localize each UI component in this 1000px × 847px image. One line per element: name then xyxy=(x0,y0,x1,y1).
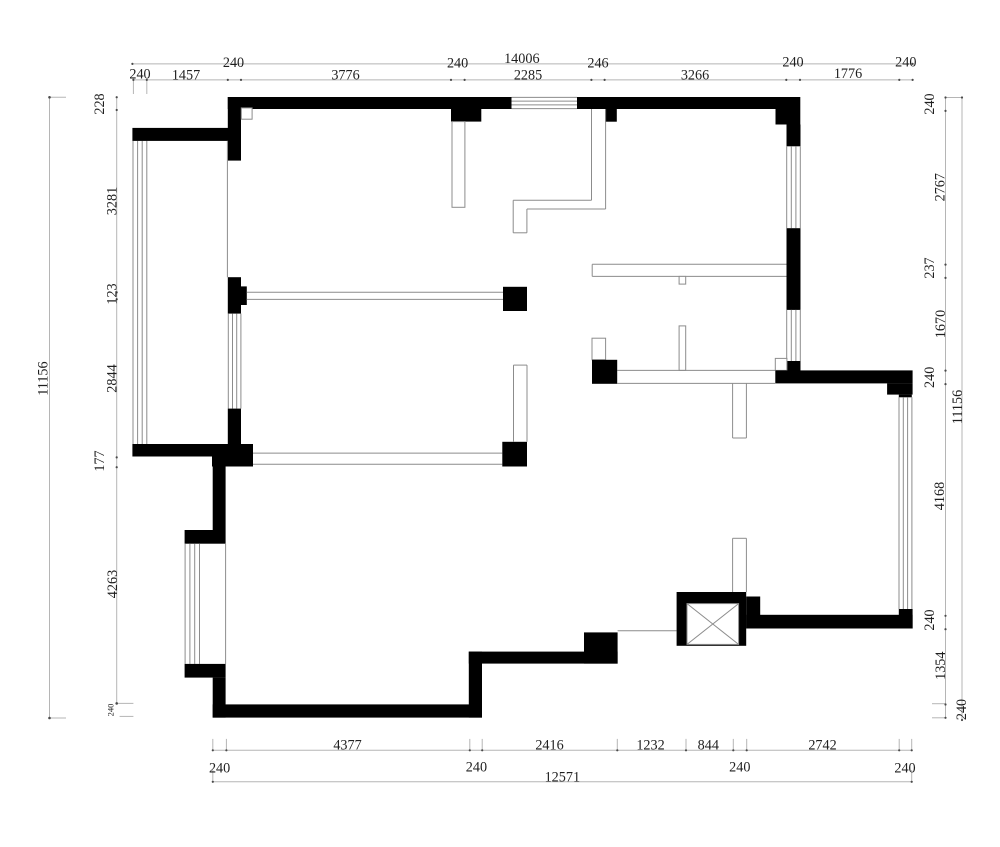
svg-text:240: 240 xyxy=(922,367,938,388)
svg-text:1670: 1670 xyxy=(933,310,949,338)
svg-text:3776: 3776 xyxy=(331,67,359,83)
svg-text:228: 228 xyxy=(92,93,108,114)
svg-text:1354: 1354 xyxy=(933,652,949,680)
svg-text:4377: 4377 xyxy=(333,737,361,753)
svg-text:246: 246 xyxy=(587,56,608,72)
svg-text:240: 240 xyxy=(729,760,750,776)
svg-text:237: 237 xyxy=(922,257,938,278)
svg-text:3266: 3266 xyxy=(681,67,709,83)
svg-text:177: 177 xyxy=(92,450,108,471)
svg-text:2416: 2416 xyxy=(535,737,563,753)
svg-text:240: 240 xyxy=(922,609,938,630)
svg-text:2767: 2767 xyxy=(933,173,949,201)
svg-text:4168: 4168 xyxy=(932,482,948,510)
svg-text:240: 240 xyxy=(894,761,915,777)
svg-text:240: 240 xyxy=(223,55,244,71)
svg-text:240: 240 xyxy=(954,699,970,720)
svg-text:2285: 2285 xyxy=(514,67,542,83)
svg-text:11156: 11156 xyxy=(36,361,52,395)
svg-text:240: 240 xyxy=(466,760,487,776)
svg-text:240: 240 xyxy=(895,55,916,71)
svg-text:3281: 3281 xyxy=(105,187,121,215)
svg-text:123: 123 xyxy=(105,283,121,304)
svg-text:1457: 1457 xyxy=(172,67,200,83)
svg-text:240: 240 xyxy=(129,67,150,83)
svg-text:240: 240 xyxy=(106,704,116,717)
svg-text:4263: 4263 xyxy=(105,570,121,598)
svg-text:240: 240 xyxy=(922,93,938,114)
svg-text:14006: 14006 xyxy=(504,51,539,67)
svg-text:844: 844 xyxy=(698,737,719,753)
svg-text:1776: 1776 xyxy=(834,66,862,82)
svg-text:12571: 12571 xyxy=(545,769,580,785)
svg-text:240: 240 xyxy=(782,55,803,71)
svg-text:2844: 2844 xyxy=(105,364,121,392)
svg-text:1232: 1232 xyxy=(636,737,664,753)
svg-text:240: 240 xyxy=(447,55,468,71)
svg-text:11156: 11156 xyxy=(950,390,966,424)
svg-text:2742: 2742 xyxy=(808,737,836,753)
svg-text:240: 240 xyxy=(209,761,230,777)
